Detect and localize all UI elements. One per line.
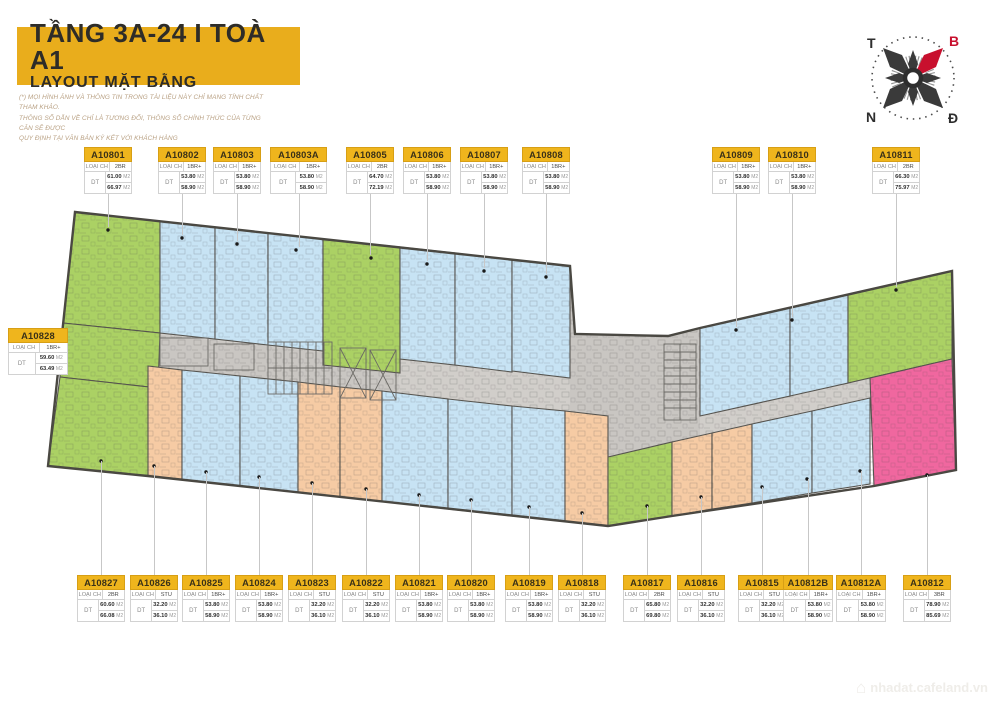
unit-area-label: DT [837, 600, 859, 621]
unit-area-1: 53.80 M2 [235, 172, 260, 183]
unit-id: A10817 [623, 575, 671, 590]
unit-type-label: LOẠI CH [523, 162, 548, 171]
unit-card: A10818 LOẠI CH STU DT 32.20 M2 36.10 M2 [558, 575, 606, 622]
unit-area-2: 58.90 M2 [235, 183, 260, 193]
unit-id: A10811 [872, 147, 920, 162]
unit-area-label: DT [78, 600, 99, 621]
unit-area-2: 58.90 M2 [425, 183, 450, 193]
unit-card: A10811 LOẠI CH 2BR DT 66.30 M2 75.97 M2 [872, 147, 920, 194]
unit-card: A10817 LOẠI CH 2BR DT 65.80 M2 69.80 M2 [623, 575, 671, 622]
unit-card: A10824 LOẠI CH 1BR+ DT 53.80 M2 58.90 M2 [235, 575, 283, 622]
unit-type-label: LOẠI CH [183, 590, 208, 599]
unit-type-value: STU [156, 590, 177, 599]
unit-id: A10809 [712, 147, 760, 162]
unit-area-label: DT [159, 172, 180, 193]
unit-area-2: 36.10 M2 [580, 611, 605, 621]
unit-area-label: DT [523, 172, 544, 193]
unit-card: A10812 LOẠI CH 3BR DT 78.90 M2 85.69 M2 [903, 575, 951, 622]
unit-type-label: LOẠI CH [461, 162, 486, 171]
disclaimer-line: (*) MỌI HÌNH ẢNH VÀ THÔNG TIN TRONG TÀI … [19, 93, 269, 114]
unit-card: A10810 LOẠI CH 1BR+ DT 53.80 M2 58.90 M2 [768, 147, 816, 194]
unit-area-2: 58.90 M2 [859, 611, 885, 621]
unit-area-label: DT [769, 172, 790, 193]
unit-type-label: LOẠI CH [506, 590, 531, 599]
unit-area-label: DT [271, 172, 296, 193]
unit-area-2: 36.10 M2 [152, 611, 177, 621]
unit-area-2: 36.10 M2 [364, 611, 389, 621]
unit-type-label: LOẠI CH [624, 590, 649, 599]
unit-type-label: LOẠI CH [769, 162, 794, 171]
unit-card: A10807 LOẠI CH 1BR+ DT 53.80 M2 58.90 M2 [460, 147, 508, 194]
unit-area-1: 32.20 M2 [152, 600, 177, 611]
unit-area-1: 78.90 M2 [925, 600, 950, 611]
unit-area-1: 60.60 M2 [99, 600, 124, 611]
watermark: ⌂ nhadat.cafeland.vn [856, 679, 988, 696]
title-banner: TẦNG 3A-24 I TOÀ A1 LAYOUT MẶT BẰNG [17, 27, 300, 85]
unit-type-value: 2BR [649, 590, 670, 599]
page-title: TẦNG 3A-24 I TOÀ A1 [30, 20, 300, 75]
unit-area-2: 58.90 M2 [482, 183, 507, 193]
unit-type-label: LOẠI CH [289, 590, 314, 599]
unit-id: A10818 [558, 575, 606, 590]
unit-card: A10825 LOẠI CH 1BR+ DT 53.80 M2 58.90 M2 [182, 575, 230, 622]
unit-id: A10827 [77, 575, 125, 590]
unit-area-1: 53.80 M2 [296, 172, 326, 183]
unit-type-label: LOẠI CH [85, 162, 110, 171]
unit-area-1: 32.20 M2 [580, 600, 605, 611]
unit-area-1: 53.80 M2 [417, 600, 442, 611]
unit-card: A10822 LOẠI CH STU DT 32.20 M2 36.10 M2 [342, 575, 390, 622]
unit-id: A10803 [213, 147, 261, 162]
unit-area-label: DT [506, 600, 527, 621]
bottom-unit-cards: A10827 LOẠI CH 2BR DT 60.60 M2 66.08 M2 … [0, 575, 1000, 625]
compass-west: T [867, 35, 876, 51]
unit-id: A10803A [270, 147, 327, 162]
unit-id: A10815 [738, 575, 786, 590]
unit-area-2: 36.10 M2 [310, 611, 335, 621]
unit-id: A10808 [522, 147, 570, 162]
unit-area-1: 64.70 M2 [368, 172, 393, 183]
top-unit-cards: A10801 LOẠI CH 2BR DT 61.00 M2 66.97 M2 … [0, 147, 1000, 197]
unit-area-1: 65.80 M2 [645, 600, 670, 611]
unit-area-label: DT [784, 600, 806, 621]
unit-area-1: 32.20 M2 [760, 600, 785, 611]
flyer-page: TẦNG 3A-24 I TOÀ A1 LAYOUT MẶT BẰNG (*) … [0, 0, 1000, 706]
unit-type-label: LOẠI CH [739, 590, 764, 599]
unit-type-value: STU [314, 590, 335, 599]
unit-area-label: DT [873, 172, 894, 193]
unit-area-1: 53.80 M2 [544, 172, 569, 183]
unit-id: A10820 [447, 575, 495, 590]
unit-id: A10821 [395, 575, 443, 590]
unit-area-2: 58.90 M2 [204, 611, 229, 621]
unit-id: A10810 [768, 147, 816, 162]
unit-card: A10809 LOẠI CH 1BR+ DT 53.80 M2 58.90 M2 [712, 147, 760, 194]
unit-id: A10823 [288, 575, 336, 590]
unit-id: A10828 [8, 328, 68, 343]
unit-type-label: LOẠI CH [347, 162, 372, 171]
unit-area-label: DT [214, 172, 235, 193]
unit-area-1: 53.80 M2 [482, 172, 507, 183]
unit-card: A10806 LOẠI CH 1BR+ DT 53.80 M2 58.90 M2 [403, 147, 451, 194]
unit-type-label: LOẠI CH [448, 590, 473, 599]
unit-card: A10815 LOẠI CH STU DT 32.20 M2 36.10 M2 [738, 575, 786, 622]
compass-north: B [949, 33, 959, 49]
unit-id: A10805 [346, 147, 394, 162]
unit-area-1: 32.20 M2 [364, 600, 389, 611]
unit-area-label: DT [739, 600, 760, 621]
unit-type-value: STU [584, 590, 605, 599]
unit-type-value: 1BR+ [421, 590, 442, 599]
unit-card: A10812B LOẠI CH 1BR+ DT 53.80 M2 58.90 M… [783, 575, 833, 622]
unit-area-label: DT [343, 600, 364, 621]
unit-area-1: 66.30 M2 [894, 172, 919, 183]
unit-id: A10812 [903, 575, 951, 590]
unit-type-label: LOẠI CH [837, 590, 863, 599]
unit-type-value: 1BR+ [738, 162, 759, 171]
unit-area-label: DT [678, 600, 699, 621]
unit-area-label: DT [85, 172, 106, 193]
unit-area-1: 61.00 M2 [106, 172, 131, 183]
unit-type-label: LOẠI CH [78, 590, 103, 599]
unit-type-label: LOẠI CH [713, 162, 738, 171]
unit-card: A10802 LOẠI CH 1BR+ DT 53.80 M2 58.90 M2 [158, 147, 206, 194]
unit-area-2: 66.97 M2 [106, 183, 131, 193]
unit-type-label: LOẠI CH [236, 590, 261, 599]
unit-area-label: DT [448, 600, 469, 621]
unit-area-label: DT [461, 172, 482, 193]
unit-area-2: 72.19 M2 [368, 183, 393, 193]
unit-type-value: STU [703, 590, 724, 599]
unit-area-2: 58.90 M2 [296, 183, 326, 193]
unit-area-1: 32.20 M2 [699, 600, 724, 611]
unit-area-label: DT [236, 600, 257, 621]
page-subtitle: LAYOUT MẶT BẰNG [30, 74, 300, 92]
unit-card: A10805 LOẠI CH 2BR DT 64.70 M2 72.19 M2 [346, 147, 394, 194]
unit-type-value: 1BR+ [261, 590, 282, 599]
unit-id: A10806 [403, 147, 451, 162]
unit-card-a10828: A10828 LOẠI CH 1BR+ DT 59.60 M2 63.49 M2 [8, 328, 68, 375]
unit-area-1: 53.80 M2 [204, 600, 229, 611]
unit-area-1: 53.80 M2 [469, 600, 494, 611]
unit-area-label: DT [9, 353, 36, 374]
unit-area-2: 58.90 M2 [806, 611, 832, 621]
unit-id: A10824 [235, 575, 283, 590]
unit-type-value: 1BR+ [531, 590, 552, 599]
unit-card: A10812A LOẠI CH 1BR+ DT 53.80 M2 58.90 M… [836, 575, 886, 622]
unit-area-1: 53.80 M2 [180, 172, 205, 183]
compass-south: N [866, 109, 876, 125]
unit-id: A10825 [182, 575, 230, 590]
unit-area-label: DT [347, 172, 368, 193]
unit-area-2: 69.80 M2 [645, 611, 670, 621]
disclaimer-line: THÔNG SỐ DẪN VỀ CHỈ LÀ TƯƠNG ĐỐI, THÔNG … [19, 114, 269, 135]
unit-card: A10821 LOẠI CH 1BR+ DT 53.80 M2 58.90 M2 [395, 575, 443, 622]
compass-icon: T B N Đ [857, 22, 969, 134]
house-search-icon: ⌂ [856, 679, 866, 696]
unit-area-2: 58.90 M2 [527, 611, 552, 621]
unit-card: A10820 LOẠI CH 1BR+ DT 53.80 M2 58.90 M2 [447, 575, 495, 622]
unit-type-value: 3BR [929, 590, 950, 599]
unit-type-label: LOẠI CH [271, 162, 300, 171]
unit-area-1: 53.80 M2 [806, 600, 832, 611]
disclaimer-line: QUY ĐỊNH TẠI VĂN BẢN KÝ KẾT VỚI KHÁCH HÀ… [19, 134, 269, 144]
unit-type-value: 2BR [372, 162, 393, 171]
unit-area-label: DT [183, 600, 204, 621]
unit-type-label: LOẠI CH [784, 590, 810, 599]
unit-area-1: 53.80 M2 [790, 172, 815, 183]
unit-area-2: 58.90 M2 [790, 183, 815, 193]
unit-type-value: 2BR [898, 162, 919, 171]
unit-type-label: LOẠI CH [678, 590, 703, 599]
unit-type-value: 2BR [103, 590, 124, 599]
unit-type-value: 1BR+ [810, 590, 832, 599]
unit-area-1: 53.80 M2 [734, 172, 759, 183]
unit-area-2: 58.90 M2 [469, 611, 494, 621]
unit-area-1: 53.80 M2 [527, 600, 552, 611]
unit-type-value: 1BR+ [429, 162, 450, 171]
unit-type-label: LOẠI CH [214, 162, 239, 171]
compass-east: Đ [948, 110, 958, 126]
unit-area-label: DT [559, 600, 580, 621]
unit-type-label: LOẠI CH [904, 590, 929, 599]
unit-card: A10827 LOẠI CH 2BR DT 60.60 M2 66.08 M2 [77, 575, 125, 622]
unit-type-value: 1BR+ [548, 162, 569, 171]
unit-type-label: LOẠI CH [9, 343, 40, 352]
unit-id: A10807 [460, 147, 508, 162]
unit-area-label: DT [404, 172, 425, 193]
unit-area-1: 59.60 M2 [36, 353, 67, 364]
unit-id: A10819 [505, 575, 553, 590]
unit-card: A10826 LOẠI CH STU DT 32.20 M2 36.10 M2 [130, 575, 178, 622]
unit-area-2: 58.90 M2 [417, 611, 442, 621]
unit-type-value: STU [764, 590, 785, 599]
unit-area-2: 36.10 M2 [699, 611, 724, 621]
unit-area-1: 32.20 M2 [310, 600, 335, 611]
unit-area-label: DT [904, 600, 925, 621]
unit-card: A10801 LOẠI CH 2BR DT 61.00 M2 66.97 M2 [84, 147, 132, 194]
unit-area-label: DT [131, 600, 152, 621]
disclaimer-text: (*) MỌI HÌNH ẢNH VÀ THÔNG TIN TRONG TÀI … [19, 93, 269, 144]
unit-card: A10823 LOẠI CH STU DT 32.20 M2 36.10 M2 [288, 575, 336, 622]
unit-card: A10803 LOẠI CH 1BR+ DT 53.80 M2 58.90 M2 [213, 147, 261, 194]
unit-card: A10808 LOẠI CH 1BR+ DT 53.80 M2 58.90 M2 [522, 147, 570, 194]
unit-type-label: LOẠI CH [559, 590, 584, 599]
unit-id: A10826 [130, 575, 178, 590]
unit-type-value: 1BR+ [794, 162, 815, 171]
unit-area-2: 36.10 M2 [760, 611, 785, 621]
unit-id: A10822 [342, 575, 390, 590]
unit-area-2: 58.90 M2 [734, 183, 759, 193]
unit-id: A10812A [836, 575, 886, 590]
unit-area-1: 53.80 M2 [257, 600, 282, 611]
unit-area-1: 53.80 M2 [859, 600, 885, 611]
unit-type-value: 1BR+ [184, 162, 205, 171]
unit-type-label: LOẠI CH [404, 162, 429, 171]
unit-area-label: DT [289, 600, 310, 621]
unit-type-value: 2BR [110, 162, 131, 171]
unit-area-2: 75.97 M2 [894, 183, 919, 193]
unit-area-1: 53.80 M2 [425, 172, 450, 183]
unit-type-value: 1BR+ [40, 343, 67, 352]
unit-area-label: DT [624, 600, 645, 621]
unit-id: A10801 [84, 147, 132, 162]
unit-area-2: 58.90 M2 [180, 183, 205, 193]
unit-type-value: 1BR+ [473, 590, 494, 599]
unit-type-label: LOẠI CH [873, 162, 898, 171]
unit-area-2: 58.90 M2 [544, 183, 569, 193]
unit-card: A10819 LOẠI CH 1BR+ DT 53.80 M2 58.90 M2 [505, 575, 553, 622]
unit-area-2: 66.08 M2 [99, 611, 124, 621]
unit-type-label: LOẠI CH [159, 162, 184, 171]
unit-area-2: 85.69 M2 [925, 611, 950, 621]
watermark-text: nhadat.cafeland.vn [870, 680, 988, 695]
unit-type-label: LOẠI CH [396, 590, 421, 599]
unit-type-label: LOẠI CH [343, 590, 368, 599]
unit-type-label: LOẠI CH [131, 590, 156, 599]
unit-card: A10803A LOẠI CH 1BR+ DT 53.80 M2 58.90 M… [270, 147, 327, 194]
unit-id: A10812B [783, 575, 833, 590]
unit-card: A10816 LOẠI CH STU DT 32.20 M2 36.10 M2 [677, 575, 725, 622]
unit-area-label: DT [713, 172, 734, 193]
unit-type-value: 1BR+ [486, 162, 507, 171]
unit-type-value: 1BR+ [300, 162, 326, 171]
unit-area-2: 58.90 M2 [257, 611, 282, 621]
unit-id: A10802 [158, 147, 206, 162]
unit-type-value: 1BR+ [208, 590, 229, 599]
unit-type-value: 1BR+ [239, 162, 260, 171]
unit-id: A10816 [677, 575, 725, 590]
unit-type-value: STU [368, 590, 389, 599]
unit-area-label: DT [396, 600, 417, 621]
unit-area-2: 63.49 M2 [36, 364, 67, 374]
unit-type-value: 1BR+ [863, 590, 885, 599]
